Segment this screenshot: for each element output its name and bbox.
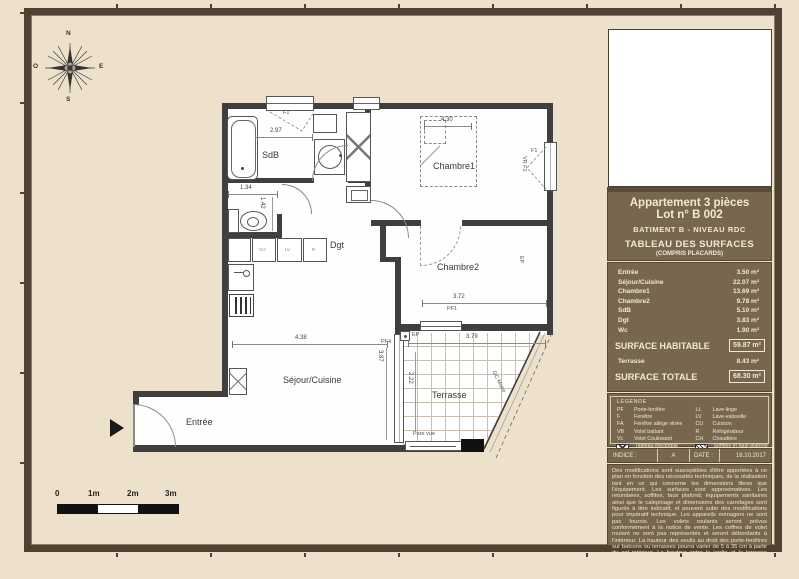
surface-value: 13.69 m² — [733, 287, 759, 297]
bathtub — [227, 116, 258, 180]
surface-label: Chambre2 — [618, 297, 650, 307]
dim-sejour-width: 4.38 — [295, 335, 307, 341]
wall — [547, 103, 553, 335]
duct-box — [346, 186, 371, 203]
wall-pier — [461, 439, 484, 452]
date-value: 16.10.2017 — [720, 453, 771, 459]
legend-abbr: CU — [690, 421, 713, 428]
legend-left-column: PFPorte-fenêtre FFenêtre FAFenêtre allèg… — [611, 407, 690, 451]
terrasse-value: 8.43 m² — [737, 358, 759, 365]
dim-line — [232, 344, 388, 345]
label-vr-f1: VR F1 — [521, 156, 527, 172]
scale-bar — [57, 504, 179, 514]
surface-row: Chambre29.78 m² — [608, 297, 771, 307]
date-label: DATE : — [690, 449, 720, 462]
surface-row: Entrée3.50 m² — [608, 268, 771, 278]
dim-wc-width: 1.34 — [240, 185, 252, 191]
room-label-chambre1: Chambre1 — [433, 161, 475, 171]
legend-label: Réfrigérateur — [713, 429, 744, 436]
surface-table-title: TABLEAU DES SURFACES — [608, 239, 771, 250]
legend-abbr: VB — [611, 429, 634, 436]
dim-sdb-width: 2.97 — [270, 128, 282, 134]
wall — [395, 324, 420, 331]
window-duct — [353, 97, 380, 110]
legend-title: LEGENDE — [611, 397, 768, 407]
surface-value: 3.50 m² — [737, 268, 759, 278]
wall — [462, 324, 553, 331]
legend-label: Volet battant — [634, 429, 663, 436]
terrasse-row: Terrasse 8.43 m² — [608, 358, 771, 365]
legend-right-column: LLLave-linge LVLave-vaisselle CUCuisson … — [690, 407, 769, 451]
surface-totale-value: 68.30 m² — [729, 370, 765, 383]
legend-abbr: R — [690, 429, 713, 436]
surface-value: 1.90 m² — [737, 326, 759, 336]
indice-value: A — [658, 449, 690, 462]
label-ep-right: EP — [518, 256, 524, 263]
surface-totale-label: SURFACE TOTALE — [615, 372, 697, 382]
legend-label: Porte-fenêtre — [634, 407, 665, 414]
title-block: Appartement 3 pièces Lot n° B 002 BATIME… — [607, 187, 772, 261]
scale-tick-3m: 3m — [165, 489, 177, 498]
logo-placeholder — [608, 29, 772, 187]
room-label-chambre2: Chambre2 — [437, 262, 479, 272]
scale-tick-1m: 1m — [88, 489, 100, 498]
privacy-screen — [405, 441, 462, 451]
surface-row: Dgt3.83 m² — [608, 316, 771, 326]
wall — [133, 391, 139, 405]
duct-shaft — [346, 112, 371, 182]
surface-label: Séjour/Cuisine — [618, 278, 664, 288]
entrance-arrow-icon — [110, 419, 124, 437]
dim-terrasse-width: 3.79 — [466, 334, 478, 340]
compass-letter-o: O — [33, 63, 38, 70]
surface-row: Chambre113.69 m² — [608, 287, 771, 297]
surface-label: SdB — [618, 306, 631, 316]
window-pf4 — [394, 334, 404, 443]
surface-row: Séjour/Cuisine22.07 m² — [608, 278, 771, 288]
room-label-terrasse: Terrasse — [432, 390, 467, 400]
bed-pillow — [424, 120, 446, 144]
entry-door-leaf — [133, 404, 135, 447]
legend-label: Lave-linge — [713, 407, 737, 414]
window-f1-chambre1 — [544, 142, 557, 191]
surface-row: SdB5.10 m² — [608, 306, 771, 316]
toilet-tank — [228, 209, 239, 233]
room-label-sdb: SdB — [262, 150, 279, 160]
apartment-title: Appartement 3 pièces — [608, 197, 771, 209]
surface-row: Wc1.90 m² — [608, 326, 771, 336]
dim-line — [255, 137, 313, 138]
label-pare-vue: Pare vue — [413, 431, 435, 437]
legend-abbr: LL — [690, 407, 713, 414]
cabinet — [313, 114, 337, 133]
surface-value: 9.78 m² — [737, 297, 759, 307]
dim-line — [228, 194, 278, 195]
dim-line — [422, 303, 547, 304]
toilet — [240, 211, 267, 231]
legend-label: Fenêtre allège vitrée — [634, 421, 682, 428]
kitchen-counter — [228, 238, 251, 262]
surface-table: Entrée3.50 m² Séjour/Cuisine22.07 m² Cha… — [607, 262, 772, 392]
compass-letter-n: N — [66, 30, 71, 37]
disclaimer: Des modifications sont susceptibles d'êt… — [607, 464, 772, 546]
wall — [133, 391, 228, 397]
floor-plan-sheet: { "page": {"background": "#EDE1CB", "fra… — [0, 0, 799, 565]
surface-value: 5.10 m² — [737, 306, 759, 316]
legend-abbr: CH — [690, 436, 713, 443]
dim-terrasse-height: 2.22 — [407, 372, 413, 384]
label-f1-right: F1 — [531, 148, 537, 154]
surface-habitable-value: 59.87 m² — [729, 339, 765, 352]
room-label-dgt: Dgt — [330, 240, 344, 250]
building-level: BATIMENT B - NIVEAU RDC — [608, 225, 771, 234]
legend: LEGENDE PFPorte-fenêtre FFenêtre FAFenêt… — [607, 393, 772, 447]
lot-number: Lot n° B 002 — [608, 209, 771, 221]
legend-abbr: F — [611, 414, 634, 421]
legend-abbr: PF — [611, 407, 634, 414]
dim-sejour-height: 3.87 — [377, 350, 383, 362]
legend-label: Chaudière — [713, 436, 737, 443]
surface-value: 3.83 m² — [737, 316, 759, 326]
legend-abbr: FA — [611, 421, 634, 428]
surface-totale-row: SURFACE TOTALE 68.30 m² — [608, 370, 771, 383]
room-label-sejour: Séjour/Cuisine — [283, 375, 342, 385]
dim-chambre2-width: 3.72 — [453, 294, 465, 300]
surface-table-subtitle: (COMPRIS PLACARDS) — [608, 251, 771, 257]
closet — [229, 368, 247, 395]
dim-line — [386, 348, 387, 440]
legend-box: LEGENDE PFPorte-fenêtre FFenêtre FAFenêt… — [610, 396, 769, 444]
compass-letter-s: S — [66, 96, 70, 103]
surface-label: Entrée — [618, 268, 638, 278]
legend-abbr: LV — [690, 414, 713, 421]
room-label-entree: Entrée — [186, 417, 213, 427]
window-pf1 — [420, 321, 462, 331]
dishwasher-label: LV — [285, 247, 290, 252]
wall — [462, 220, 553, 226]
surface-value: 22.07 m² — [733, 278, 759, 288]
compass-rose-icon — [44, 42, 96, 94]
surface-habitable-row: SURFACE HABITABLE 59.87 m² — [608, 339, 771, 352]
legend-label: Lave-vaisselle — [713, 414, 747, 421]
dim-line — [415, 352, 416, 432]
electrical-panel — [229, 294, 254, 317]
dim-chambre1-width: 4.30 — [441, 117, 453, 123]
compass-letter-e: E — [99, 63, 103, 70]
disclaimer-text: Des modifications sont susceptibles d'êt… — [608, 465, 771, 579]
scale-tick-2m: 2m — [127, 489, 139, 498]
indice-date-row: INDICE : A DATE : 16.10.2017 — [607, 448, 772, 463]
indice-label: INDICE : — [608, 449, 658, 462]
dim-wc-height: 1.42 — [259, 197, 265, 209]
legend-label: Volet Coulissant — [634, 436, 672, 443]
surface-label: Wc — [618, 326, 628, 336]
terrasse-label: Terrasse — [618, 358, 645, 365]
legend-abbr: Vc — [611, 436, 634, 443]
surface-label: Chambre1 — [618, 287, 650, 297]
dim-line — [408, 343, 546, 344]
legend-label: Fenêtre — [634, 414, 652, 421]
dim-line — [272, 197, 273, 231]
hob-label: CU — [259, 247, 266, 252]
fridge-label: R — [312, 247, 315, 252]
chambre2-door-leaf — [420, 226, 421, 266]
label-pf1: PF1 — [447, 306, 457, 312]
window-f1-sdb — [266, 96, 314, 111]
dim-line — [424, 126, 472, 127]
scale-tick-0: 0 — [55, 489, 59, 498]
label-f1-top: F1 — [283, 110, 289, 116]
legend-label: Cuisson — [713, 421, 732, 428]
surface-habitable-label: SURFACE HABITABLE — [615, 341, 710, 351]
kitchen-sink — [228, 264, 254, 291]
label-ep: EP — [412, 332, 419, 338]
surface-label: Dgt — [618, 316, 629, 326]
